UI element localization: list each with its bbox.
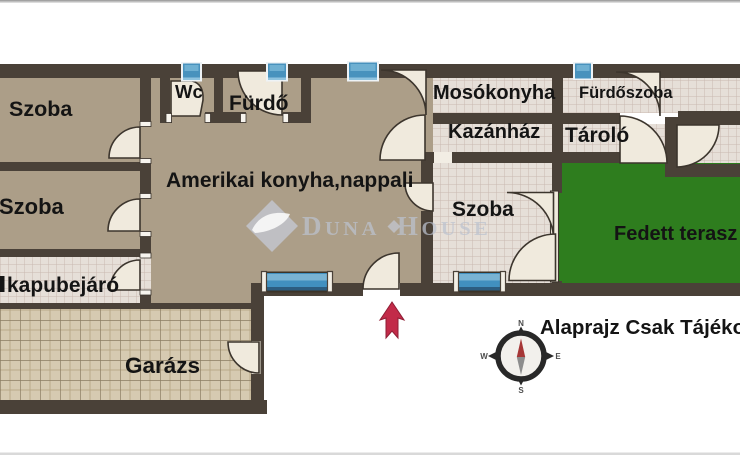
svg-text:E: E: [555, 352, 561, 361]
svg-text:kapubejáró: kapubejáró: [7, 274, 119, 297]
svg-text:N: N: [518, 319, 524, 328]
svg-text:Szoba: Szoba: [452, 198, 514, 221]
svg-text:Wc: Wc: [175, 81, 203, 102]
svg-text:Fedett terasz: Fedett terasz: [614, 223, 737, 245]
svg-text:Szoba: Szoba: [0, 194, 65, 219]
svg-text:Tároló: Tároló: [565, 124, 629, 147]
svg-text:S: S: [518, 386, 524, 395]
svg-text:Mosókonyha: Mosókonyha: [433, 82, 556, 104]
svg-text:Fürdőszoba: Fürdőszoba: [579, 84, 673, 102]
svg-text:Alaprajz Csak Tájékoztató: Alaprajz Csak Tájékoztató: [540, 316, 740, 339]
svg-text:Garázs: Garázs: [125, 353, 200, 378]
svg-text:Szoba: Szoba: [9, 97, 73, 121]
svg-text:Amerikai konyha,nappali: Amerikai konyha,nappali: [166, 169, 413, 192]
svg-text:Fürdő: Fürdő: [229, 92, 288, 115]
svg-text:W: W: [480, 352, 488, 361]
svg-text:Kazánház: Kazánház: [448, 121, 540, 143]
